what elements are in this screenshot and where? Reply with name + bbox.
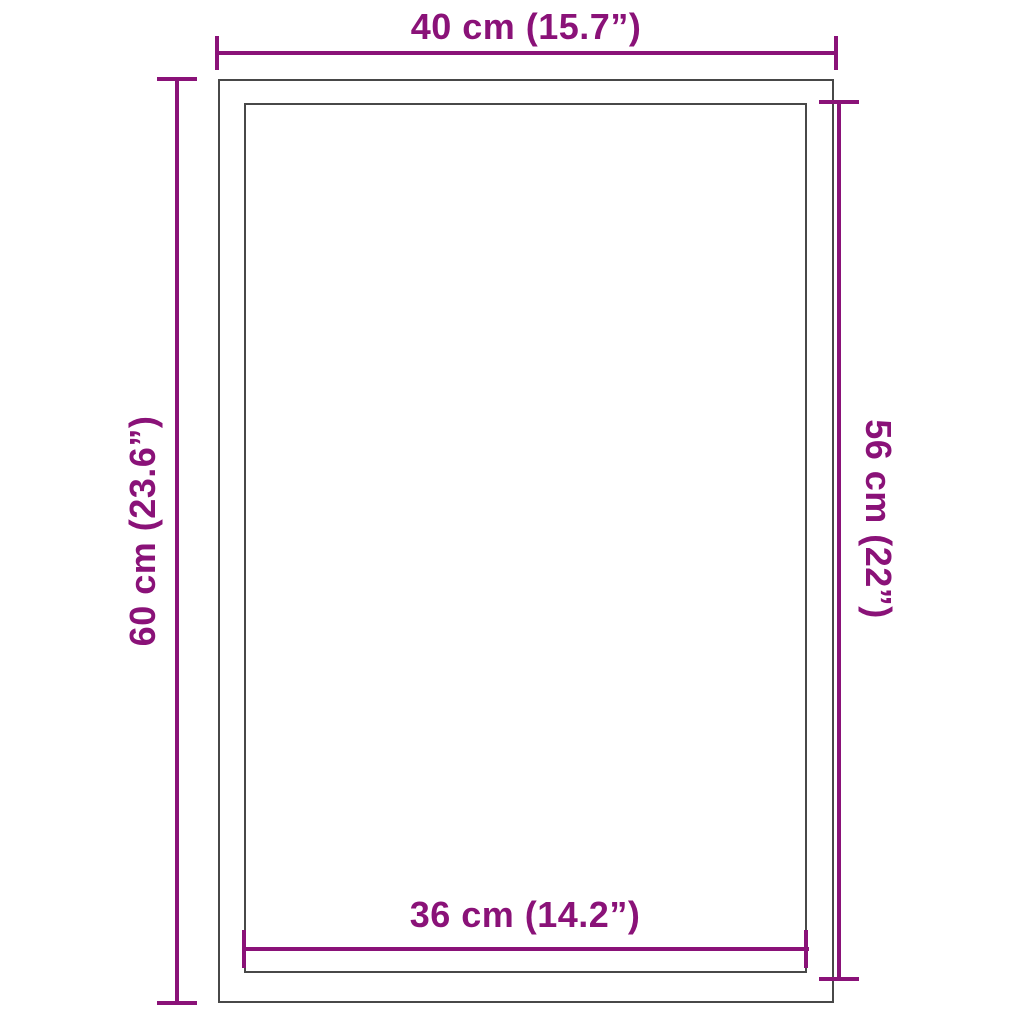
left-dimension-line [175,79,179,1005]
left-dimension-tick-top [157,77,197,81]
right-dimension-line [837,101,841,981]
dimension-diagram: 40 cm (15.7”) 60 cm (23.6”) 56 cm (22”) … [0,0,1024,1024]
top-dimension-tick-left [215,36,219,70]
right-dimension-tick-bottom [819,977,859,981]
bottom-dimension-tick-left [242,930,246,968]
top-dimension-line [215,51,838,55]
right-dimension-tick-top [819,100,859,104]
inner-height-label: 56 cm (22”) [857,419,899,619]
inner-width-label: 36 cm (14.2”) [410,894,641,936]
bottom-dimension-tick-right [804,930,808,968]
bottom-dimension-line [243,947,809,951]
inner-rectangle-outline [244,103,807,973]
left-dimension-tick-bottom [157,1001,197,1005]
top-dimension-tick-right [834,36,838,70]
outer-height-label: 60 cm (23.6”) [122,416,164,647]
outer-width-label: 40 cm (15.7”) [411,6,642,48]
